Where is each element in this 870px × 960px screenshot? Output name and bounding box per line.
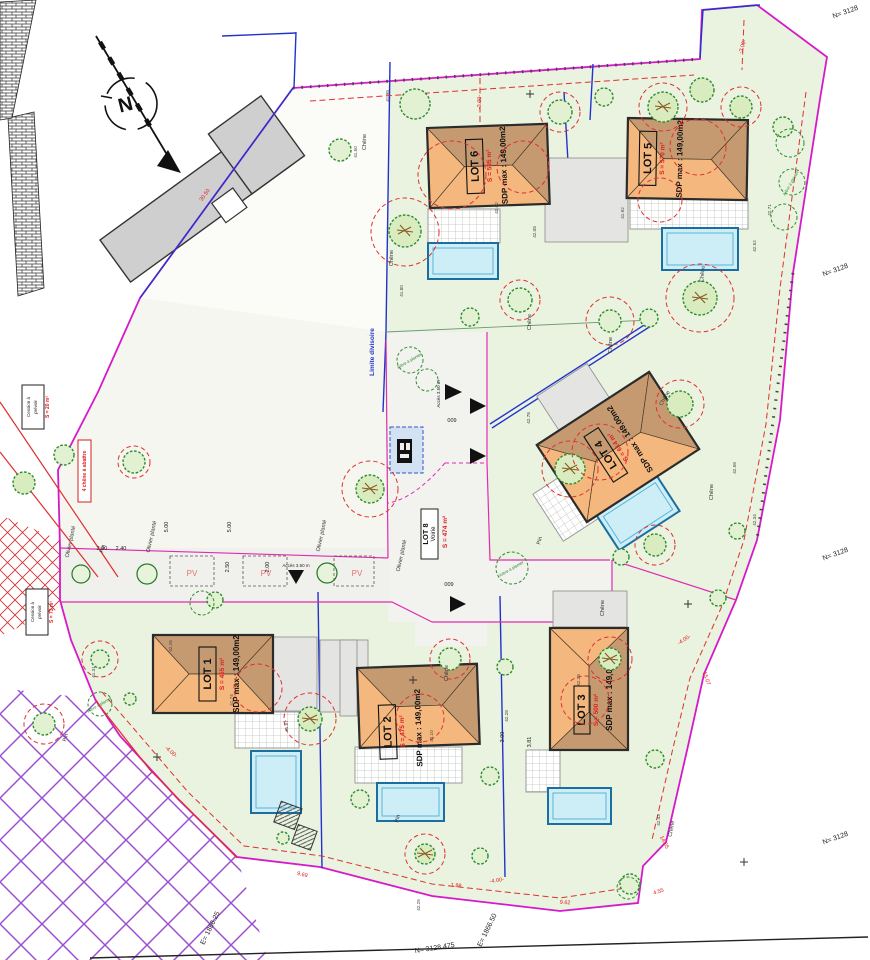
bin-collection-area	[390, 427, 423, 473]
svg-text:42.08: 42.08	[532, 226, 537, 238]
svg-text:42.28: 42.28	[504, 710, 509, 722]
parcel-number: 009	[447, 418, 456, 424]
cession-2-line1: Cession à	[30, 602, 35, 623]
svg-text:Chêne: Chêne	[389, 250, 395, 266]
lot-5-sdp: SDP max : 149,00m2	[675, 119, 685, 197]
svg-text:41.31: 41.31	[91, 666, 96, 678]
lot-3-house: LOT 3 S = 500 m² SDP max : 149,00m2	[550, 628, 628, 750]
lot-2-name: LOT 2	[382, 716, 395, 748]
svg-text:3.81: 3.81	[527, 737, 533, 748]
svg-text:41.74: 41.74	[229, 694, 234, 706]
acces-label: Accès 3.50 m	[282, 563, 310, 568]
svg-text:5.00: 5.00	[227, 522, 233, 533]
lot-1-name: LOT 1	[202, 658, 214, 689]
pool-lot-1	[251, 751, 301, 813]
lot-5-surface: S = 570 m²	[659, 142, 667, 175]
lot-8-surface: S = 474 m²	[442, 515, 449, 548]
svg-text:42.78: 42.78	[526, 412, 531, 424]
limite-divisoire-label: Limite divisoire	[369, 328, 376, 376]
lot-6-house: LOT 6 S = 595 m² SDP max : 149,00m2	[427, 124, 550, 208]
lot-8-name: LOT 8	[421, 523, 430, 544]
lot-1-surface: S = 455 m²	[219, 657, 226, 690]
svg-text:Chêne: Chêne	[444, 665, 450, 681]
svg-text:42.58: 42.58	[732, 462, 737, 474]
svg-text:42.23: 42.23	[576, 674, 581, 686]
site-plan: N	[0, 0, 870, 960]
cession-1-line2: prévoir	[33, 400, 38, 414]
svg-text:3.00: 3.00	[500, 732, 506, 743]
svg-text:2.50: 2.50	[225, 562, 231, 573]
pool-lot-6	[428, 243, 498, 279]
pv-label: PV	[352, 569, 363, 578]
svg-text:Chêne: Chêne	[362, 134, 368, 150]
cession-1-line1: Cession à	[26, 397, 31, 418]
svg-text:-3.00-: -3.00-	[477, 95, 484, 110]
acces-label: Accès 3.50 m	[436, 380, 441, 408]
svg-text:Chêne: Chêne	[709, 484, 715, 500]
svg-text:42.71: 42.71	[767, 204, 772, 216]
svg-text:41.80: 41.80	[399, 285, 404, 297]
lot-6-name: LOT 6	[469, 151, 482, 183]
chene-abattre-label: 4 chêne à abattre	[82, 450, 88, 491]
pool-lot-3	[548, 788, 611, 824]
svg-text:Chêne: Chêne	[600, 600, 606, 616]
svg-text:Chêne: Chêne	[608, 337, 614, 353]
svg-text:9.62: 9.62	[560, 900, 571, 907]
lot-6-surface: S = 595 m²	[486, 149, 494, 182]
svg-text:2.40: 2.40	[116, 546, 127, 552]
svg-text:42.02: 42.02	[494, 202, 499, 214]
lot-5-house: LOT 5 S = 570 m² SDP max : 149,00m2	[627, 118, 748, 200]
lot-8-type: Voirie	[431, 526, 437, 542]
svg-text:42.25: 42.25	[416, 899, 421, 911]
svg-text:1.88: 1.88	[450, 882, 461, 889]
svg-text:5.00: 5.00	[164, 522, 170, 533]
svg-text:41.98: 41.98	[385, 90, 390, 102]
svg-text:41.57: 41.57	[284, 720, 289, 732]
svg-text:42.43: 42.43	[656, 814, 661, 826]
svg-text:41.50: 41.50	[353, 146, 358, 158]
lot-5-name: LOT 5	[642, 143, 655, 174]
svg-text:41.92: 41.92	[620, 207, 625, 219]
svg-text:42.34: 42.34	[752, 514, 757, 526]
svg-text:42.10: 42.10	[429, 730, 434, 742]
svg-text:2.00: 2.00	[265, 562, 271, 573]
pool-lot-2	[377, 783, 444, 821]
svg-text:42.26: 42.26	[168, 640, 173, 652]
parcel-number: 009	[444, 582, 453, 588]
site-plan-svg: N	[0, 0, 870, 960]
pv-label: PV	[187, 569, 198, 578]
svg-text:Chêne: Chêne	[527, 314, 533, 330]
cession-1-surface: S = 20 m²	[45, 396, 51, 418]
lot-3-name: LOT 3	[576, 694, 588, 725]
cession-2-line2: prévoir	[37, 605, 42, 619]
cession-2-surface: S = 73 m²	[49, 601, 55, 623]
svg-text:42.52: 42.52	[752, 240, 757, 252]
svg-text:2.00: 2.00	[97, 546, 108, 552]
